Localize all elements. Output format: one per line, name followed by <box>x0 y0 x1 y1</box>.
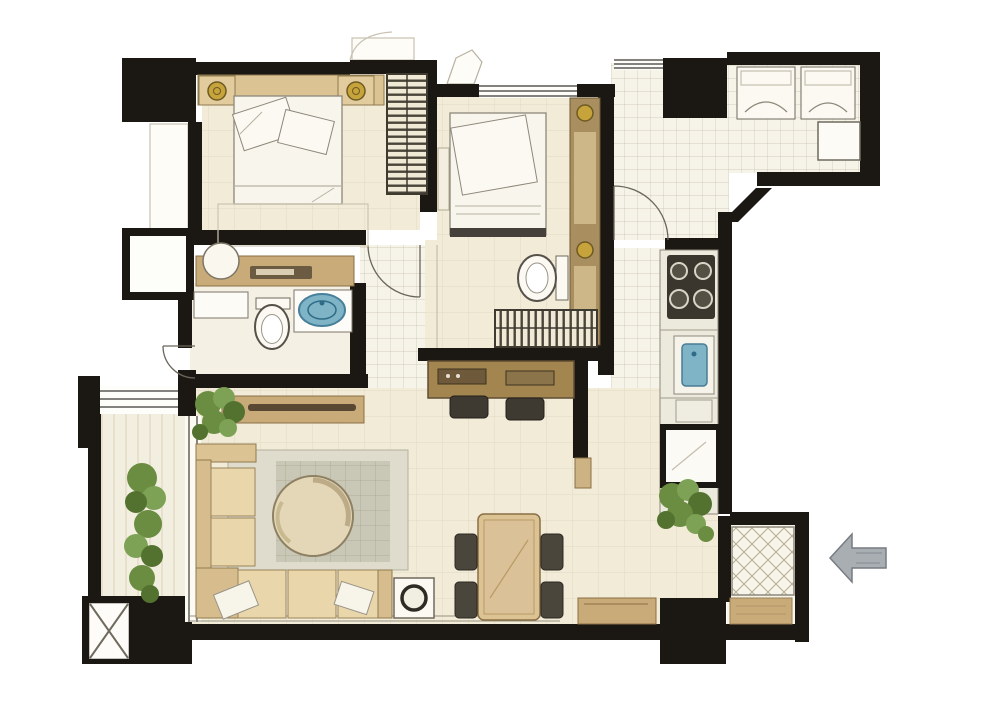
counter-appliance <box>676 400 712 422</box>
console-rail <box>248 404 356 411</box>
wall-foyer-right <box>795 512 809 642</box>
desk-item <box>506 371 554 385</box>
exterior-ledge <box>150 124 188 230</box>
sofa-cushion <box>211 468 255 516</box>
wall-balcony-top <box>727 52 867 65</box>
wall-bedroom1-bottom <box>188 230 366 245</box>
floor-plan <box>0 0 1000 703</box>
living-room <box>196 444 434 619</box>
wall-top-bedroom1 <box>196 62 350 75</box>
bedside-bench <box>438 148 449 210</box>
cabinet-end <box>575 458 591 488</box>
plant-foliage <box>134 510 162 538</box>
tray-insert <box>256 269 294 275</box>
plant-foliage <box>141 545 163 567</box>
plant-foliage <box>219 419 237 437</box>
wall-left-upper <box>188 122 202 234</box>
wall-fold-detail <box>447 50 482 84</box>
wall-master-top-left <box>437 84 481 97</box>
plant-foliage <box>657 511 675 529</box>
dining-chair <box>541 534 563 570</box>
entry-tile <box>732 527 794 595</box>
wall-right-upper <box>860 52 880 186</box>
wall-kitchen-top <box>665 238 718 250</box>
wall-master-top-right <box>577 84 615 97</box>
round-coffee-table <box>273 476 353 556</box>
floor-plan-canvas <box>0 0 1000 703</box>
toilet-bowl <box>526 263 548 293</box>
sofa-cushion <box>211 518 255 566</box>
foyer <box>730 527 794 624</box>
burner-icon <box>670 290 688 308</box>
stool <box>506 398 544 420</box>
stool <box>450 396 488 418</box>
desk-item <box>438 369 486 384</box>
window-master-top <box>479 84 577 98</box>
refrigerator <box>663 427 719 485</box>
wall-desk-top <box>418 348 600 361</box>
wall-foyer-left <box>718 516 731 602</box>
toilet-tank <box>556 256 568 300</box>
wall-balcony-bottom <box>757 172 862 186</box>
plant-foliage <box>192 424 208 440</box>
faucet-icon <box>320 301 325 306</box>
gold-knob-icon <box>577 242 593 258</box>
plant-foliage <box>141 585 159 603</box>
round-sink <box>299 294 345 326</box>
column-top-center <box>663 58 727 118</box>
dining-chair <box>455 534 477 570</box>
sofa-back <box>196 460 211 570</box>
pillow <box>451 115 538 195</box>
cabinet-panel <box>574 132 596 224</box>
gold-knob-icon <box>577 105 593 121</box>
kitchen-sink <box>682 344 707 386</box>
bath-fixture <box>194 292 248 318</box>
sideboard <box>578 598 656 624</box>
burner-icon <box>671 263 687 279</box>
doormat <box>730 598 792 624</box>
burner-icon <box>695 263 711 279</box>
column-bottom-center <box>660 598 726 664</box>
burner-icon <box>694 290 712 308</box>
column-top-left <box>122 58 196 122</box>
kitchen <box>660 250 719 514</box>
desk-item-dot <box>446 374 450 378</box>
dining-chair <box>541 582 563 618</box>
sofa-armrest <box>378 570 392 618</box>
water-heater <box>818 122 860 160</box>
table-lamp-icon <box>402 586 426 610</box>
plant-foliage <box>125 491 147 513</box>
ac-ledge-box <box>126 232 190 296</box>
sofa-cushion <box>288 570 336 618</box>
bed-footboard <box>450 228 546 237</box>
plant-foliage <box>698 526 714 542</box>
table-top <box>484 520 534 614</box>
faucet-icon <box>692 352 697 357</box>
desk-item-dot <box>456 374 460 378</box>
wall-bathroom-left <box>178 296 192 348</box>
shaft-symbol <box>88 602 130 660</box>
toilet-bowl <box>262 315 283 344</box>
wall-desk-right <box>573 348 588 458</box>
sofa-armrest <box>196 444 256 462</box>
window-pier-left <box>78 376 100 448</box>
dining-chair <box>455 582 477 618</box>
window-hall-top <box>614 58 663 70</box>
table-lamp-icon <box>347 82 365 100</box>
table-lamp-icon <box>208 82 226 100</box>
wall-bathroom-bottom <box>178 374 368 388</box>
window-left-balcony <box>100 386 178 414</box>
wash-basin <box>203 243 239 279</box>
entry-arrow-icon <box>830 534 886 582</box>
entry-arrow <box>830 534 886 582</box>
